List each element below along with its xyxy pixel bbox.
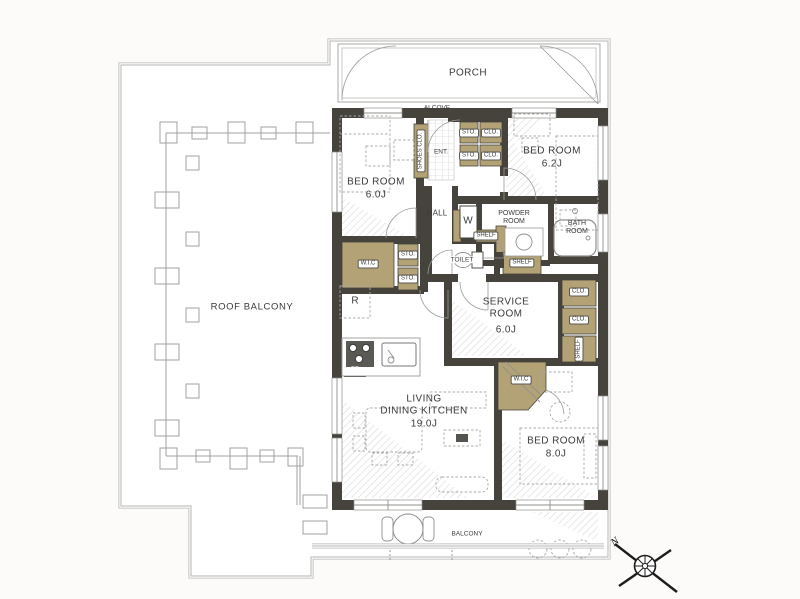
- room-label-alcove: ALCOVE: [424, 104, 450, 111]
- storage-label-shelf-1: SHELF: [473, 232, 498, 241]
- room-size-bedroom-ne: 6.2J: [542, 158, 563, 170]
- storage-label-clo-4: CLO.: [569, 316, 589, 325]
- storage-label-wic-2: W.I.C: [511, 376, 532, 385]
- room-label-bath-room: BATH ROOM: [560, 220, 594, 236]
- room-label-powder-room: POWDER ROOM: [490, 210, 538, 226]
- room-label-hall: HALL: [427, 208, 448, 217]
- label-pipe-space: FS: [351, 367, 359, 374]
- compass: [615, 544, 677, 592]
- storage-label-clo-3: CLO.: [569, 288, 589, 297]
- room-label-toilet: TOILET: [450, 256, 475, 263]
- storage-label-clo-1: CLO.: [481, 129, 501, 138]
- room-label-ldk-line1: LIVING: [406, 393, 441, 405]
- storage-label-shelf-3: SHELF: [575, 336, 584, 361]
- storage-label-sto-4: STO.: [398, 275, 418, 284]
- room-label-bedroom-se: BED ROOM: [527, 435, 585, 447]
- floor-plan-drawing: [0, 0, 800, 599]
- storage-label-wic-1: W.I.C: [358, 260, 379, 269]
- room-label-entrance: ENT.: [434, 148, 448, 155]
- room-size-ldk: 19.0J: [411, 418, 437, 430]
- room-label-balcony: BALCONY: [451, 530, 482, 537]
- appliance-label-washer: W: [463, 215, 472, 227]
- room-size-bedroom-se: 8.0J: [546, 448, 567, 460]
- room-label-service-room: SERVICE ROOM: [474, 297, 538, 320]
- floor-plan: PORCH ALCOVE ENT. SHOES CLO. STO. CLO. S…: [0, 0, 800, 599]
- room-label-roof-balcony: ROOF BALCONY: [211, 303, 294, 314]
- storage-label-sto-1: STO.: [459, 129, 479, 138]
- storage-label-sto-2: STO.: [459, 152, 479, 161]
- appliance-label-refrigerator: R: [351, 295, 358, 307]
- storage-label-sto-3: STO.: [398, 251, 418, 260]
- storage-label-shoes-closet: SHOES CLO.: [417, 130, 426, 173]
- room-size-bedroom-nw: 6.0J: [366, 189, 387, 201]
- storage-label-shelf-2: SHELF: [509, 259, 534, 268]
- room-label-bedroom-ne: BED ROOM: [523, 145, 581, 157]
- room-label-ldk-line2: DINING KITCHEN: [380, 405, 467, 417]
- room-label-bedroom-nw: BED ROOM: [347, 176, 405, 188]
- room-size-service-room: 6.0J: [496, 324, 517, 336]
- storage-label-clo-2: CLO.: [481, 152, 501, 161]
- room-label-porch: PORCH: [449, 67, 487, 79]
